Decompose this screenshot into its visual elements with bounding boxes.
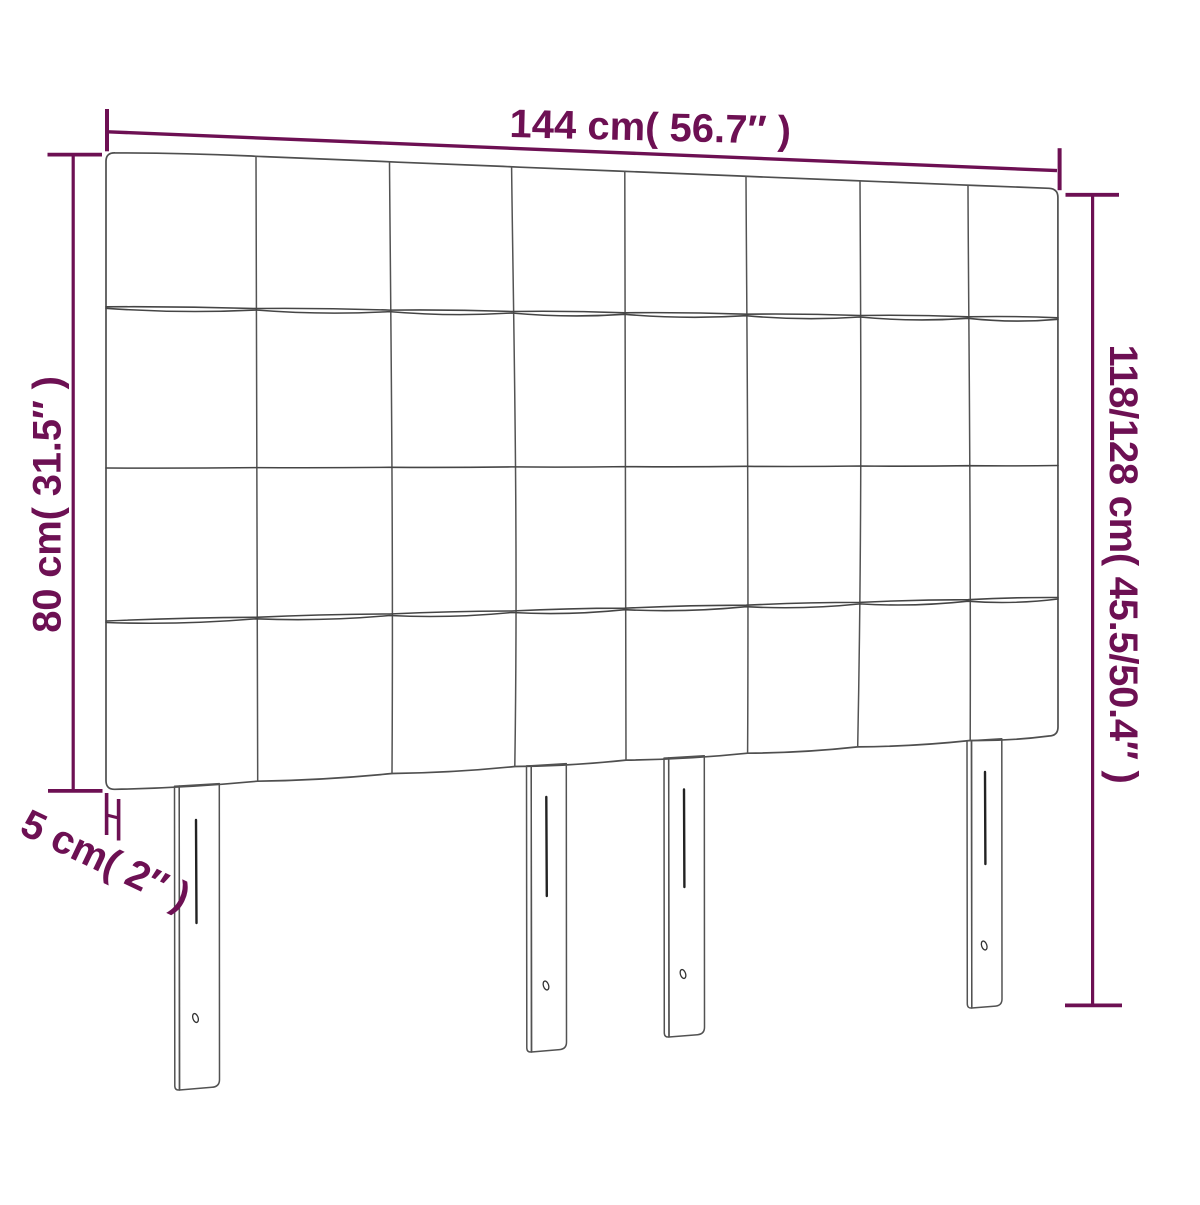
- svg-text:80 cm( 31.5″ ): 80 cm( 31.5″ ): [26, 376, 70, 633]
- svg-text:118/128 cm( 45.5/50.4″ ): 118/128 cm( 45.5/50.4″ ): [1101, 345, 1145, 784]
- svg-text:144 cm( 56.7″ ): 144 cm( 56.7″ ): [509, 102, 792, 153]
